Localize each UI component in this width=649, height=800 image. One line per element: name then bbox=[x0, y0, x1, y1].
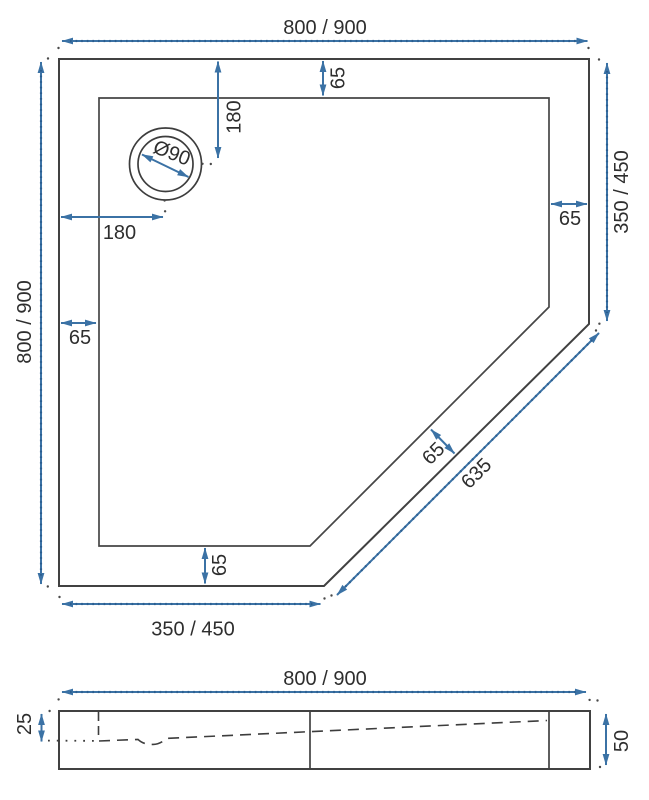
svg-text:635: 635 bbox=[457, 454, 496, 493]
svg-text:350 / 450: 350 / 450 bbox=[151, 619, 234, 641]
svg-text:65: 65 bbox=[209, 554, 231, 576]
svg-text:800 / 900: 800 / 900 bbox=[14, 280, 36, 363]
svg-text:180: 180 bbox=[103, 222, 136, 244]
svg-text:65: 65 bbox=[559, 208, 581, 230]
svg-text:65: 65 bbox=[69, 327, 91, 349]
svg-text:65: 65 bbox=[328, 67, 350, 89]
svg-text:800 / 900: 800 / 900 bbox=[283, 668, 366, 690]
svg-text:800 / 900: 800 / 900 bbox=[283, 17, 366, 39]
svg-text:50: 50 bbox=[611, 730, 633, 752]
svg-text:25: 25 bbox=[14, 713, 36, 735]
svg-text:350 / 450: 350 / 450 bbox=[611, 150, 633, 233]
svg-text:180: 180 bbox=[224, 100, 246, 133]
svg-text:Ø90: Ø90 bbox=[150, 136, 193, 170]
